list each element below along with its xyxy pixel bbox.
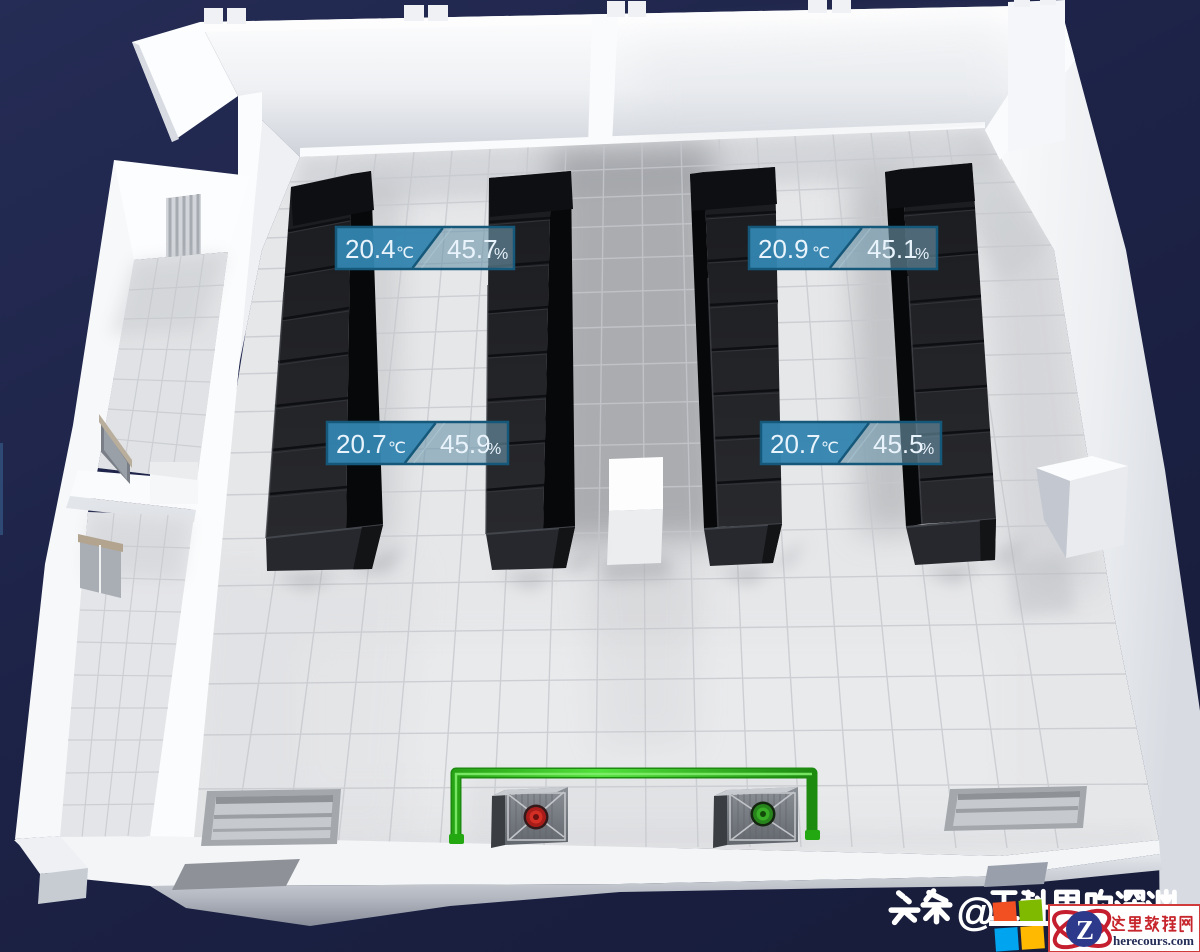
svg-text:%: %: [487, 441, 501, 458]
svg-text:20.7: 20.7: [336, 429, 387, 459]
svg-text:45.1: 45.1: [867, 234, 918, 264]
svg-text:℃: ℃: [812, 245, 830, 262]
svg-text:%: %: [920, 441, 934, 458]
svg-text:℃: ℃: [388, 440, 406, 457]
svg-text:℃: ℃: [821, 440, 839, 457]
svg-text:20.7: 20.7: [770, 429, 821, 459]
svg-text:Z: Z: [1076, 915, 1094, 945]
svg-text:%: %: [915, 246, 929, 263]
svg-text:@: @: [956, 892, 996, 935]
svg-text:45.7: 45.7: [447, 234, 498, 264]
svg-text:45.9: 45.9: [440, 429, 491, 459]
svg-text:herecours.com: herecours.com: [1113, 933, 1194, 948]
svg-text:℃: ℃: [396, 245, 414, 262]
svg-text:20.4: 20.4: [345, 234, 396, 264]
svg-text:45.5: 45.5: [873, 429, 924, 459]
svg-text:20.9: 20.9: [758, 234, 809, 264]
svg-text:%: %: [494, 246, 508, 263]
